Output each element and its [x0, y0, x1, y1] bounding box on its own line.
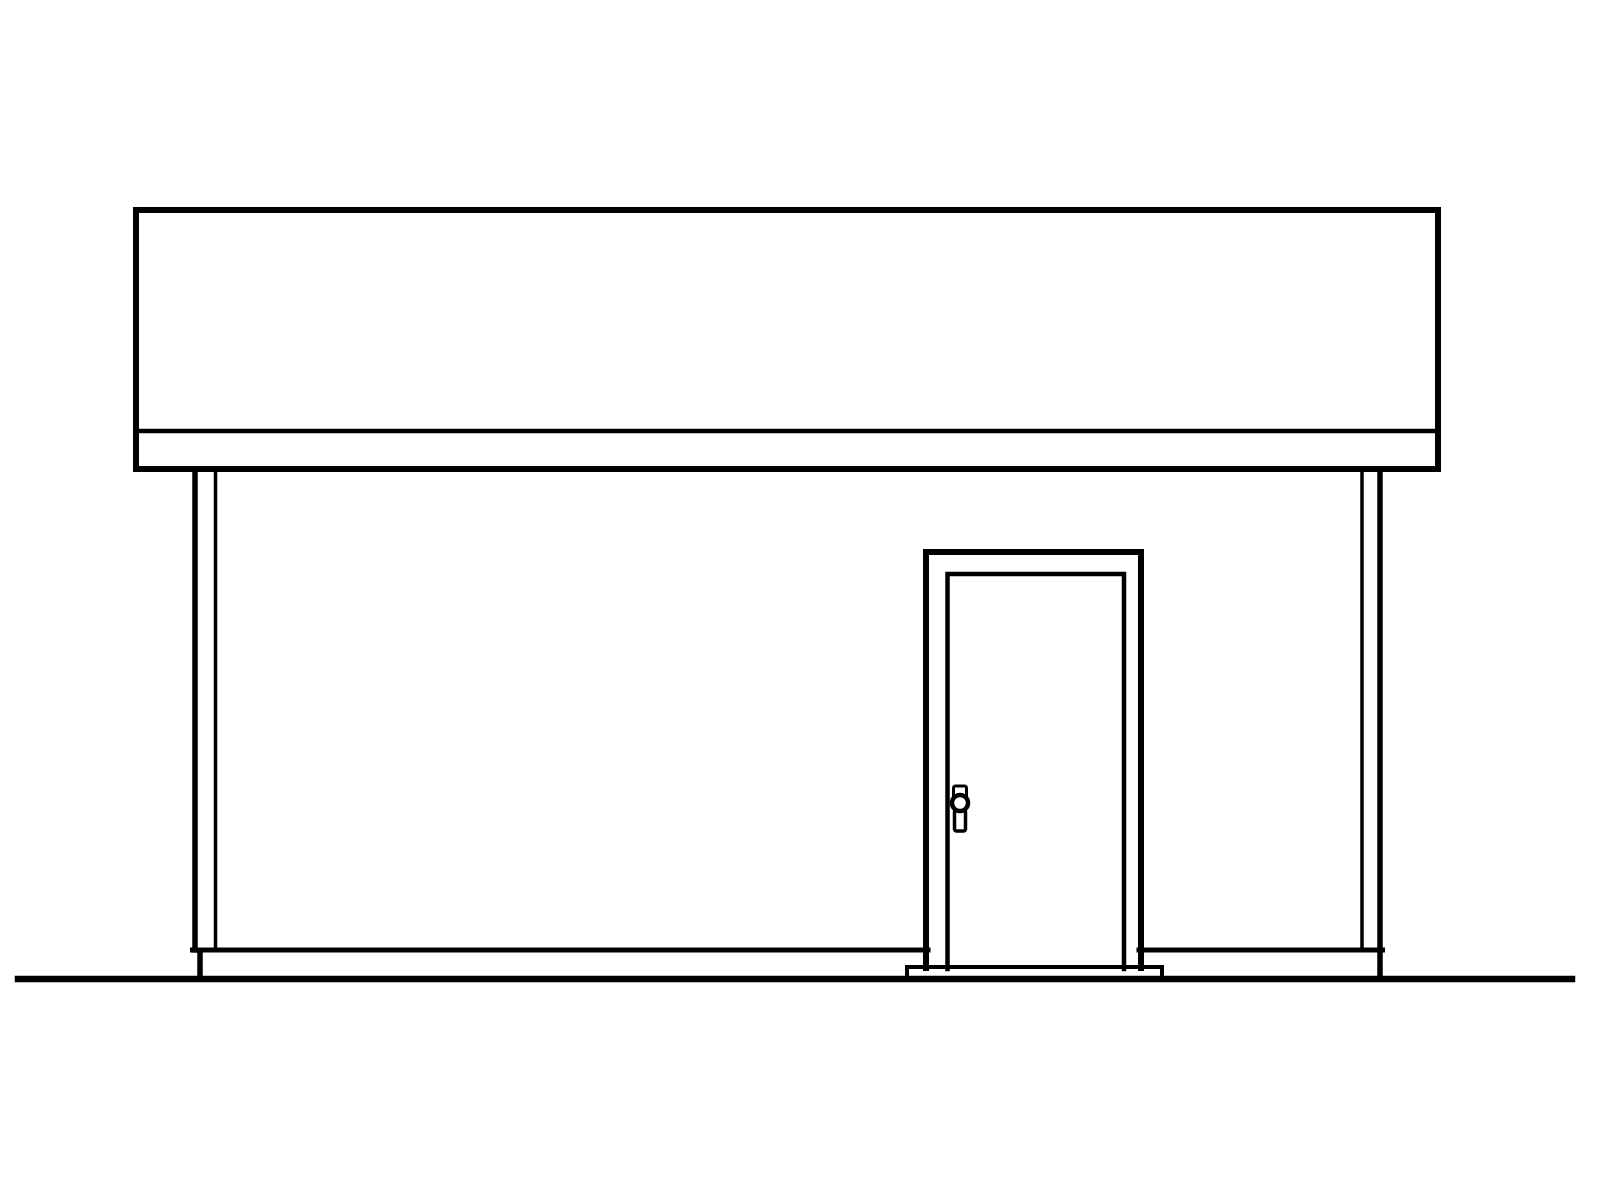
- elevation-drawing: [0, 0, 1600, 1200]
- door-panel-outline: [948, 574, 1125, 969]
- door-knob: [952, 795, 968, 811]
- door-frame-outline: [926, 552, 1141, 968]
- elevation-drawing-sheet: [0, 0, 1600, 1200]
